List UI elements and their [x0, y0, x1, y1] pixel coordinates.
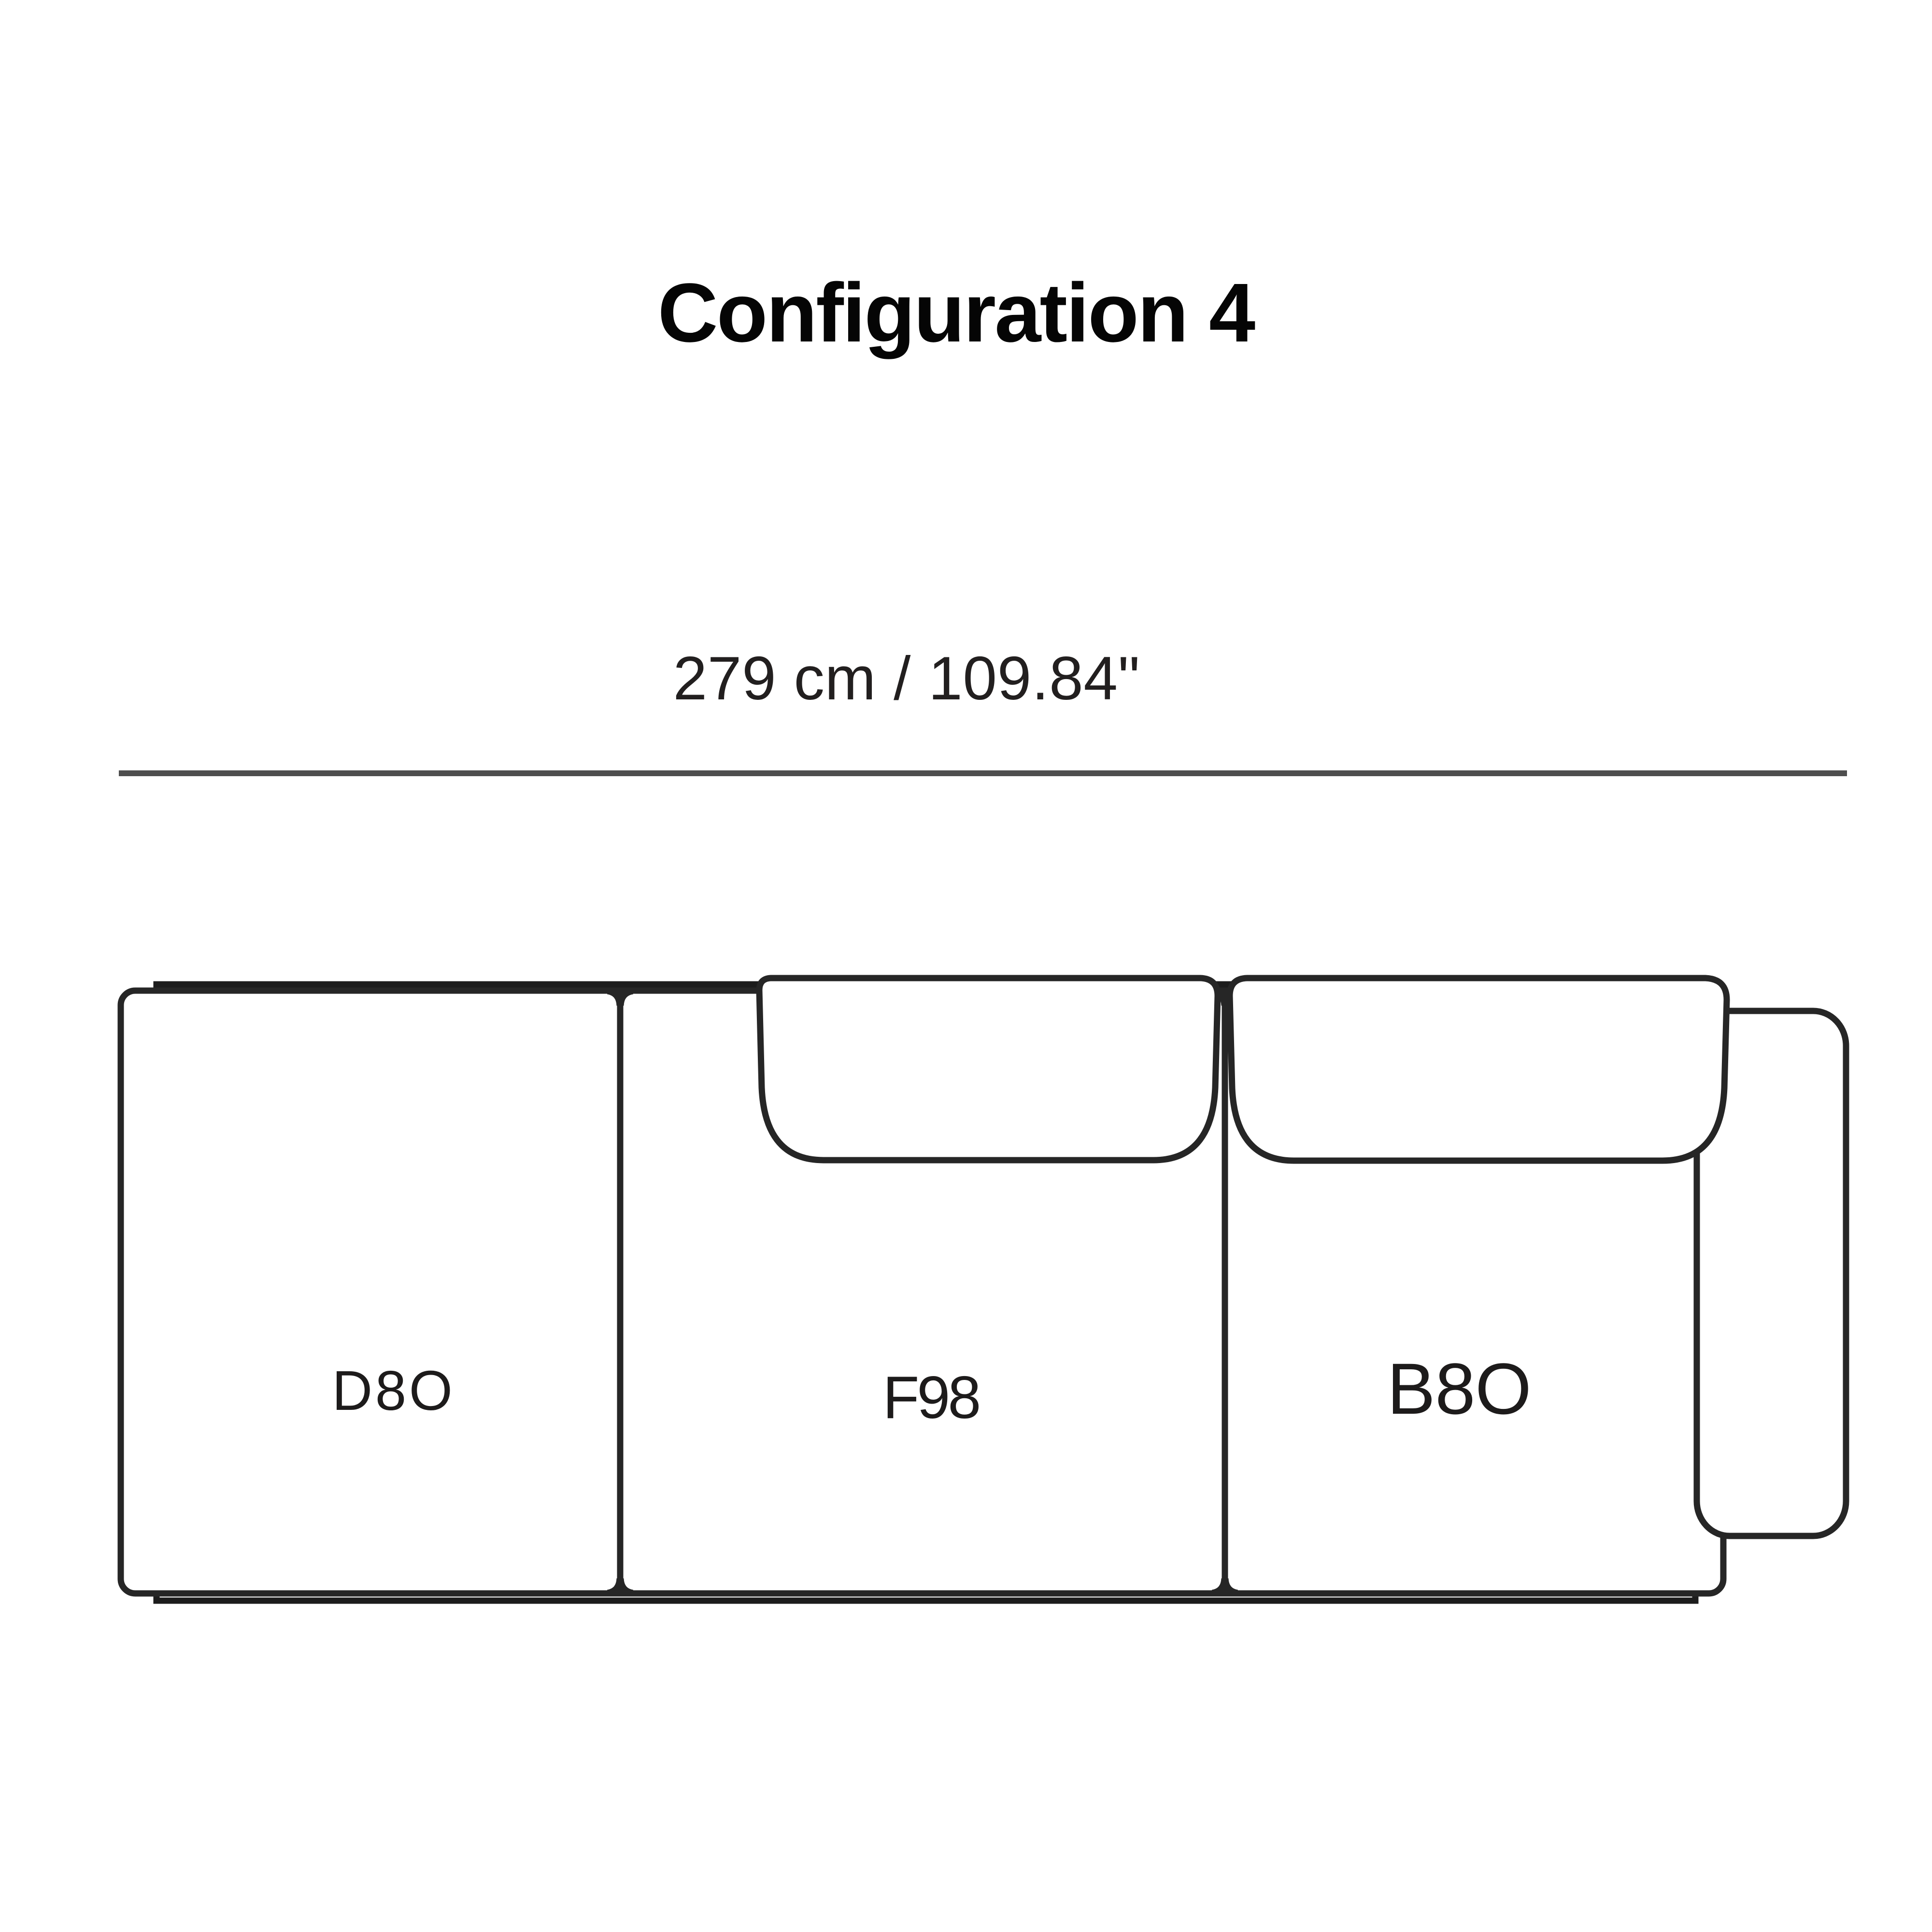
svg-text:B8O: B8O: [1387, 1348, 1532, 1429]
svg-text:D8O: D8O: [332, 1359, 455, 1422]
svg-text:F98: F98: [883, 1364, 979, 1431]
svg-text:Configuration 4: Configuration 4: [658, 266, 1255, 359]
svg-text:279 cm / 109.84": 279 cm / 109.84": [673, 644, 1140, 712]
